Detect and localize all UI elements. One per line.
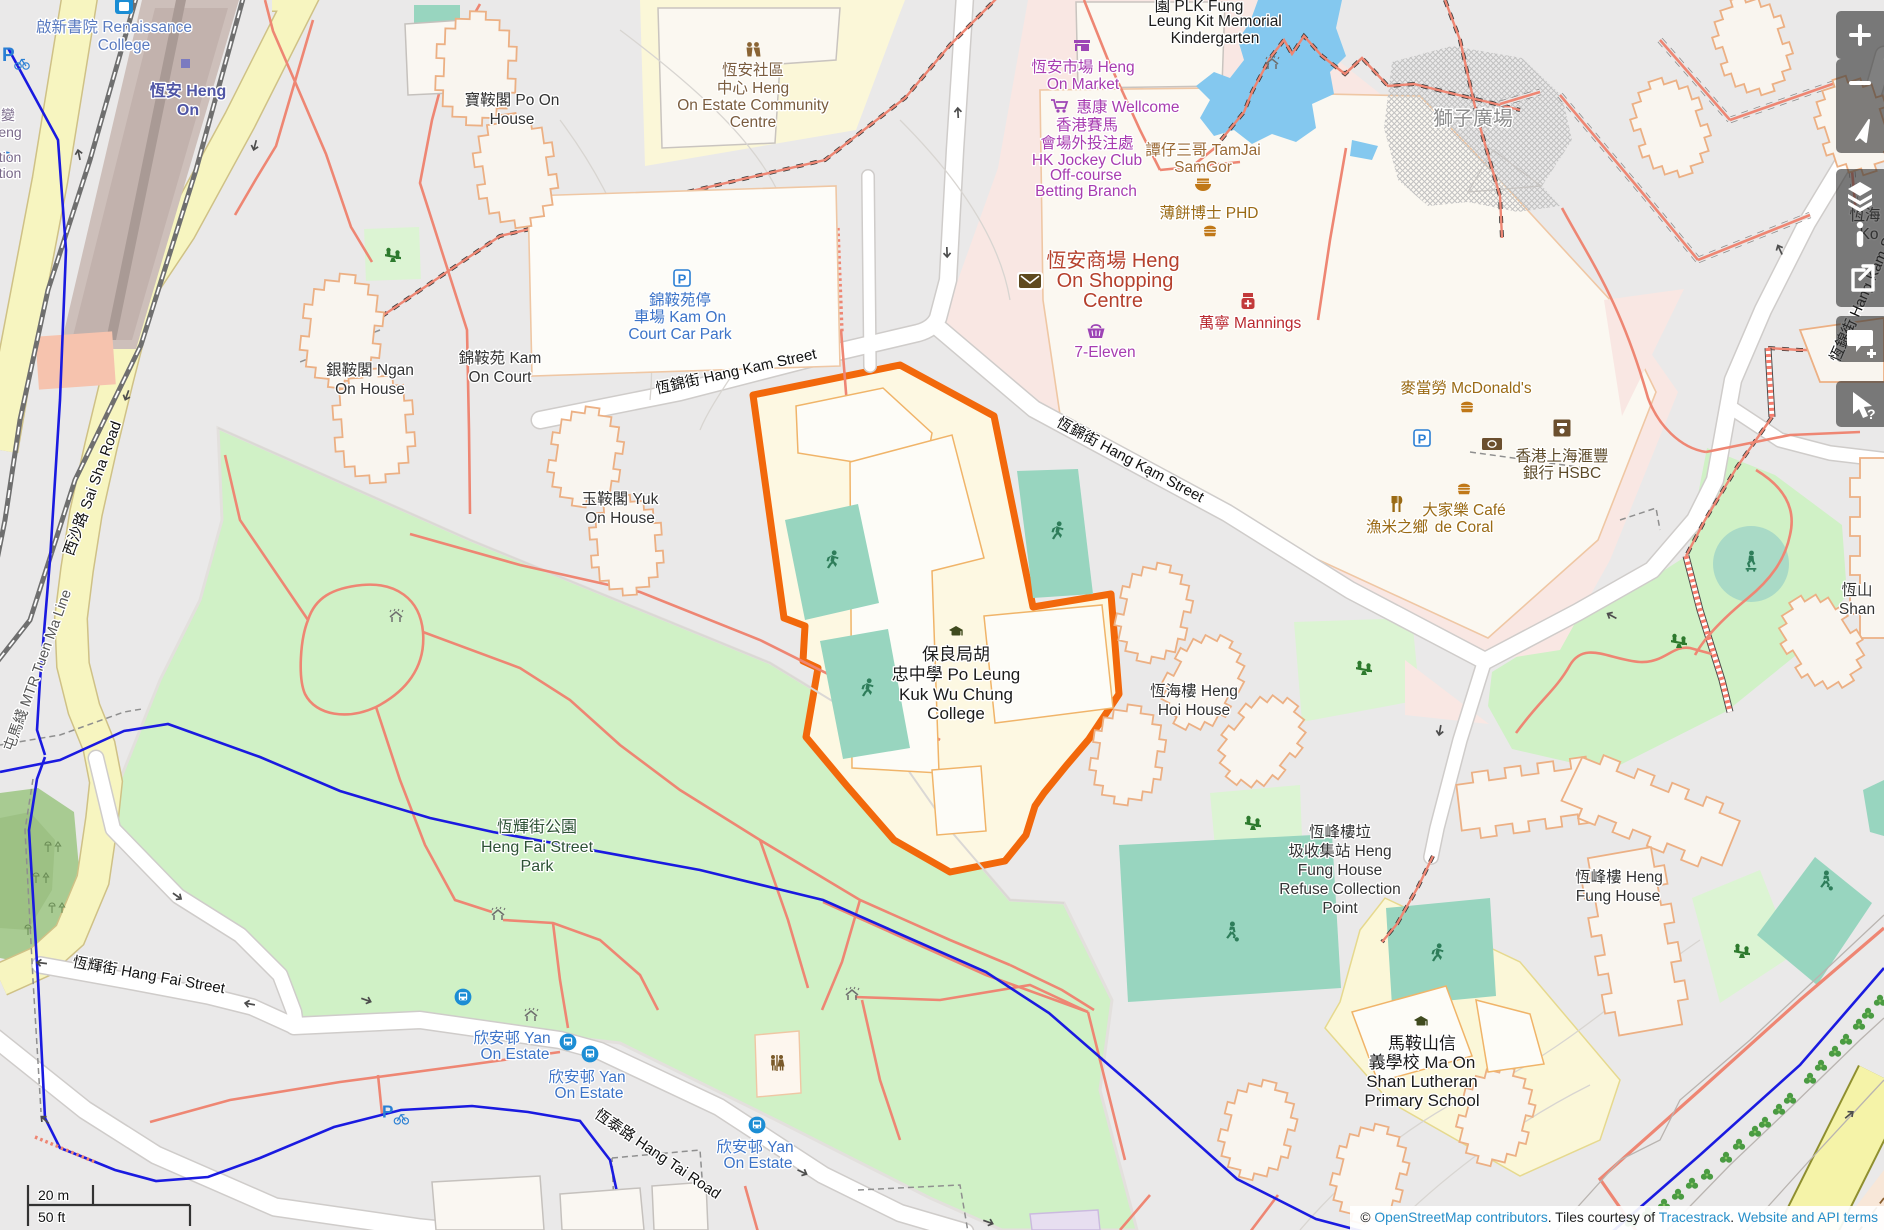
svg-text:Shan Lutheran: Shan Lutheran [1366, 1072, 1478, 1091]
svg-text:恆安商場 Heng: 恆安商場 Heng [1046, 249, 1179, 272]
svg-text:On Market: On Market [1047, 76, 1120, 93]
svg-text:Heng Fai Street: Heng Fai Street [481, 839, 594, 856]
svg-text:On Estate Community: On Estate Community [677, 97, 829, 114]
svg-text:Kindergarten: Kindergarten [1171, 30, 1260, 47]
svg-text:Park: Park [521, 858, 555, 875]
svg-text:de Coral: de Coral [1435, 519, 1494, 536]
svg-text:恆峰樓垃: 恆峰樓垃 [1309, 823, 1371, 841]
svg-text:麥當勞 McDonald's: 麥當勞 McDonald's [1400, 379, 1532, 397]
svg-text:Shan: Shan [1839, 601, 1875, 618]
svg-text:On Court: On Court [469, 369, 533, 386]
svg-text:銀鞍閣 Ngan: 銀鞍閣 Ngan [326, 361, 414, 379]
svg-text:Leung Kit Memorial: Leung Kit Memorial [1148, 13, 1282, 30]
svg-text:Off-course: Off-course [1050, 167, 1122, 184]
svg-text:欣安邨 Yan: 欣安邨 Yan [473, 1029, 550, 1047]
svg-text:On Estate: On Estate [481, 1046, 550, 1063]
svg-text:Point: Point [1322, 900, 1358, 917]
svg-text:恆安市場 Heng: 恆安市場 Heng [1031, 58, 1134, 76]
svg-text:恆海樓 Heng: 恆海樓 Heng [1150, 682, 1238, 700]
svg-text:SamGor: SamGor [1174, 159, 1232, 176]
svg-text:欣安邨 Yan: 欣安邨 Yan [716, 1138, 793, 1156]
svg-text:玉鞍閣 Yuk: 玉鞍閣 Yuk [582, 490, 659, 508]
svg-text:On Estate: On Estate [724, 1155, 793, 1172]
svg-text:馬鞍山信: 馬鞍山信 [1388, 1034, 1456, 1053]
svg-text:寶鞍閣 Po On: 寶鞍閣 Po On [465, 90, 560, 109]
svg-text:Centre: Centre [730, 114, 777, 131]
svg-text:恆安社區: 恆安社區 [722, 61, 784, 79]
svg-text:薄餅博士 PHD: 薄餅博士 PHD [1159, 204, 1258, 222]
svg-text:香港上海滙豐: 香港上海滙豐 [1515, 447, 1608, 465]
svg-text:On House: On House [585, 510, 655, 527]
svg-text:圾收集站 Heng: 圾收集站 Heng [1288, 842, 1391, 860]
svg-text:欣安邨 Yan: 欣安邨 Yan [548, 1068, 625, 1086]
svg-text:保良局胡: 保良局胡 [922, 645, 990, 664]
svg-text:香港賽馬: 香港賽馬 [1056, 116, 1118, 134]
svg-text:漁米之鄉: 漁米之鄉 [1366, 518, 1428, 536]
svg-text:譚仔三哥 TamJai: 譚仔三哥 TamJai [1145, 141, 1260, 159]
svg-text:House: House [490, 111, 535, 128]
svg-text:Fung House: Fung House [1298, 862, 1382, 879]
svg-text:義學校 Ma On: 義學校 Ma On [1369, 1053, 1476, 1072]
svg-text:錦鞍苑停: 錦鞍苑停 [649, 291, 711, 309]
svg-text:中心 Heng: 中心 Heng [717, 79, 789, 97]
svg-text:獅子廣場: 獅子廣場 [1433, 107, 1513, 130]
svg-text:銀行 HSBC: 銀行 HSBC [1523, 464, 1601, 482]
svg-text:On House: On House [335, 381, 405, 398]
svg-text:On Estate: On Estate [555, 1085, 624, 1102]
svg-text:車場 Kam On: 車場 Kam On [634, 308, 726, 326]
svg-text:Refuse Collection: Refuse Collection [1279, 881, 1400, 898]
svg-text:恆輝街公園: 恆輝街公園 [497, 818, 577, 836]
svg-text:Fung House: Fung House [1576, 888, 1660, 905]
svg-text:P: P [382, 1102, 393, 1121]
svg-text:恆山: 恆山 [1841, 581, 1872, 599]
svg-text:錦鞍苑 Kam: 錦鞍苑 Kam [459, 349, 542, 367]
svg-text:忠中學 Po Leung: 忠中學 Po Leung [892, 665, 1021, 684]
svg-text:大家樂 Café: 大家樂 Café [1422, 501, 1506, 519]
svg-text:Court Car Park: Court Car Park [628, 326, 732, 343]
svg-text:惠康 Wellcome: 惠康 Wellcome [1076, 98, 1179, 116]
svg-text:萬寧 Mannings: 萬寧 Mannings [1199, 314, 1302, 332]
svg-text:Hoi House: Hoi House [1158, 702, 1230, 719]
svg-text:Betting Branch: Betting Branch [1035, 183, 1137, 200]
svg-text:恆峰樓 Heng: 恆峰樓 Heng [1575, 868, 1663, 886]
svg-text:7-Eleven: 7-Eleven [1074, 344, 1135, 361]
svg-text:Centre: Centre [1083, 290, 1143, 312]
svg-text:On Shopping: On Shopping [1057, 270, 1174, 292]
svg-text:20 m: 20 m [38, 1187, 69, 1203]
svg-text:Primary School: Primary School [1364, 1091, 1479, 1110]
svg-text:College: College [927, 704, 985, 723]
svg-text:50 ft: 50 ft [38, 1209, 65, 1225]
svg-text:Kuk Wu Chung: Kuk Wu Chung [899, 685, 1013, 704]
svg-text:?: ? [1867, 406, 1876, 422]
svg-text:會場外投注處: 會場外投注處 [1040, 134, 1133, 152]
